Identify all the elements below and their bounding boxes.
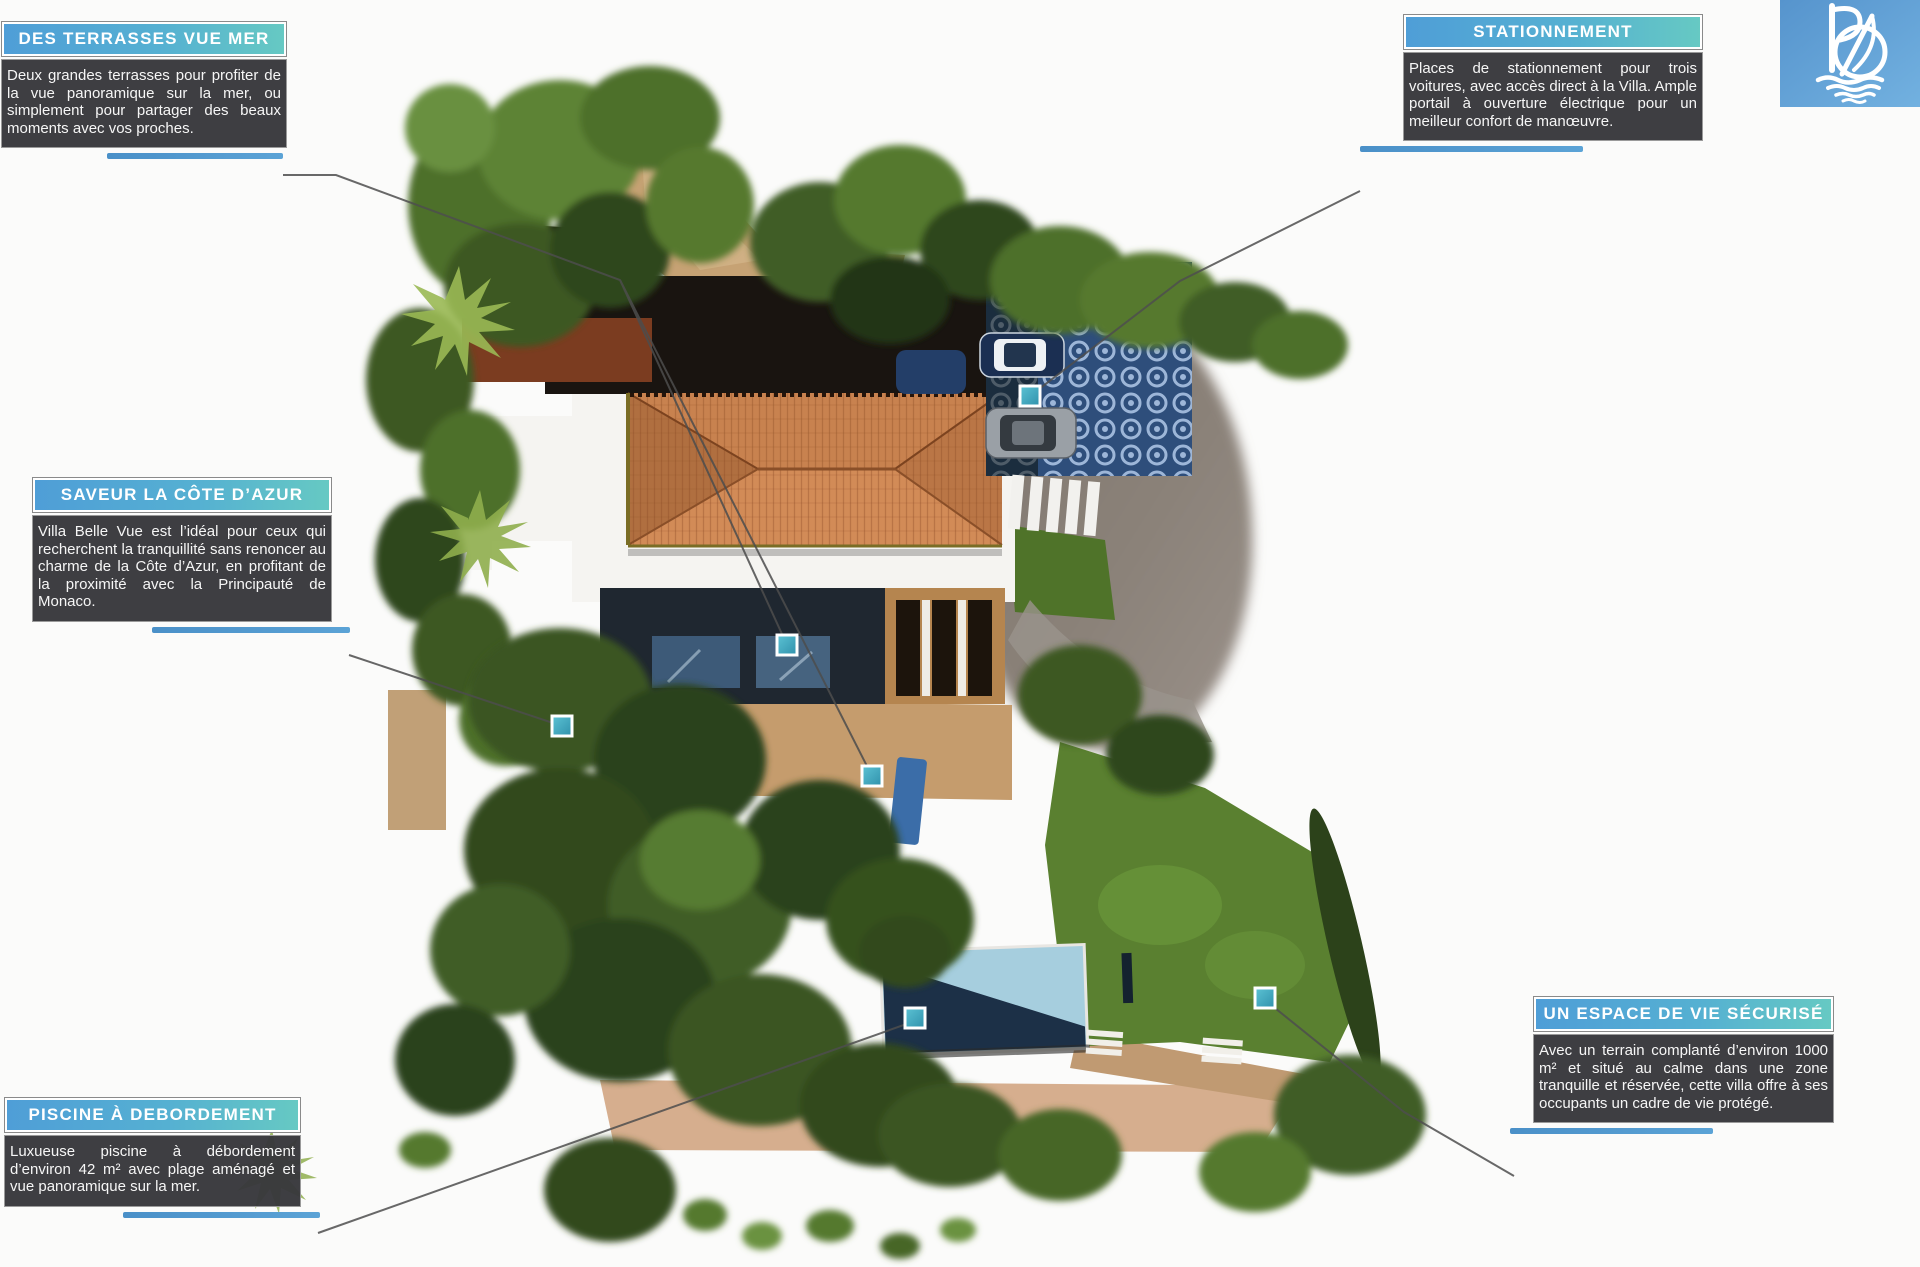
- marker-espace-securise[interactable]: [1255, 988, 1275, 1008]
- car: [986, 408, 1076, 458]
- agency-logo: [1780, 0, 1920, 107]
- callout-espace: UN ESPACE DE VIE SÉCURISÉ Avec un terrai…: [1534, 997, 1833, 1134]
- callout-terrasses-body: Deux grandes terrasses pour profiter de …: [2, 60, 286, 147]
- callout-piscine: PISCINE À DEBORDEMENT Luxueuse piscine à…: [5, 1098, 300, 1218]
- callout-saveur-title: SAVEUR LA CÔTE D’AZUR: [33, 478, 331, 512]
- callout-underline: [1510, 1128, 1713, 1134]
- car: [896, 350, 966, 394]
- marker-terrasse-inferieure[interactable]: [862, 766, 882, 786]
- callout-underline: [1360, 146, 1583, 152]
- marker-stationnement[interactable]: [1020, 386, 1040, 406]
- callout-saveur: SAVEUR LA CÔTE D’AZUR Villa Belle Vue es…: [33, 478, 331, 633]
- callout-stationnement: STATIONNEMENT Places de stationnement po…: [1404, 15, 1702, 152]
- car: [980, 333, 1064, 377]
- villa-roof: [628, 393, 1002, 556]
- callout-underline: [107, 153, 283, 159]
- callout-stationnement-title: STATIONNEMENT: [1404, 15, 1702, 49]
- annotated-aerial-plan: DES TERRASSES VUE MER Deux grandes terra…: [0, 0, 1920, 1267]
- callout-espace-title: UN ESPACE DE VIE SÉCURISÉ: [1534, 997, 1833, 1031]
- callout-espace-body: Avec un terrain complanté d’environ 1000…: [1534, 1035, 1833, 1122]
- callout-terrasses-title: DES TERRASSES VUE MER: [2, 22, 286, 56]
- belle-vue-monogram-icon: [1780, 0, 1920, 107]
- callout-underline: [123, 1212, 320, 1218]
- callout-piscine-title: PISCINE À DEBORDEMENT: [5, 1098, 300, 1132]
- callout-piscine-body: Luxueuse piscine à débordement d’environ…: [5, 1136, 300, 1206]
- marker-jardin[interactable]: [552, 716, 572, 736]
- callout-saveur-body: Villa Belle Vue est l’idéal pour ceux qu…: [33, 516, 331, 621]
- marker-terrasse-superieure[interactable]: [777, 635, 797, 655]
- callout-stationnement-body: Places de stationnement pour trois voitu…: [1404, 53, 1702, 140]
- callout-terrasses: DES TERRASSES VUE MER Deux grandes terra…: [2, 22, 286, 159]
- callout-underline: [152, 627, 350, 633]
- marker-piscine[interactable]: [905, 1008, 925, 1028]
